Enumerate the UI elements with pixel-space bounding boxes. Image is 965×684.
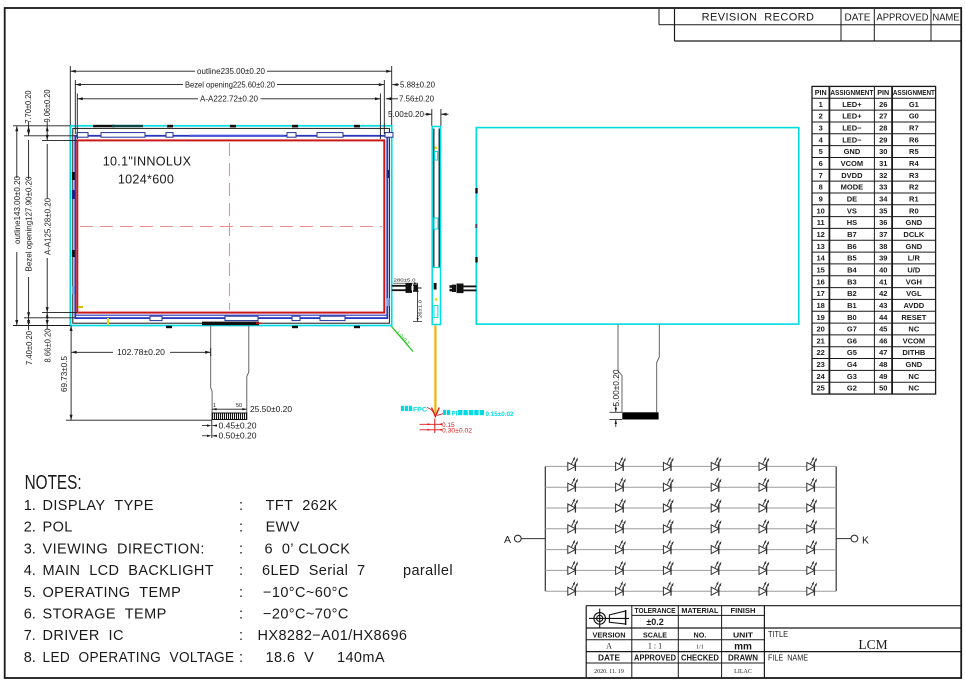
svg-text:34: 34 bbox=[879, 194, 888, 203]
svg-text::: : bbox=[239, 628, 243, 644]
svg-text:AVDD: AVDD bbox=[903, 301, 924, 310]
svg-text:17: 17 bbox=[817, 289, 825, 298]
svg-text:10: 10 bbox=[817, 206, 825, 215]
svg-text:VIEWING DIRECTION:: VIEWING DIRECTION: bbox=[43, 541, 205, 557]
svg-text:SCALE: SCALE bbox=[643, 630, 667, 639]
svg-text:DITHB: DITHB bbox=[902, 348, 925, 357]
svg-text:LCM: LCM bbox=[858, 637, 887, 652]
svg-text:31: 31 bbox=[879, 159, 887, 168]
svg-text:NC: NC bbox=[908, 325, 919, 334]
svg-text::: : bbox=[239, 607, 243, 623]
svg-text:LED−: LED− bbox=[842, 123, 862, 132]
svg-text:1: 1 bbox=[819, 100, 823, 109]
svg-text:69.73±0.5: 69.73±0.5 bbox=[60, 355, 69, 392]
svg-text:R4: R4 bbox=[909, 159, 919, 168]
svg-text:37: 37 bbox=[879, 230, 887, 239]
svg-text:APPROVED: APPROVED bbox=[634, 653, 676, 662]
svg-text:40: 40 bbox=[879, 265, 887, 274]
svg-text:R3: R3 bbox=[909, 171, 919, 180]
svg-text:DATE: DATE bbox=[845, 13, 871, 24]
svg-text:14: 14 bbox=[817, 254, 826, 263]
svg-text:A-A222.72±0.20: A-A222.72±0.20 bbox=[200, 95, 259, 104]
svg-text:28: 28 bbox=[879, 123, 887, 132]
svg-text:5.00±0.20: 5.00±0.20 bbox=[388, 110, 425, 119]
svg-text:11: 11 bbox=[817, 218, 825, 227]
svg-text:outline235.00±0.20: outline235.00±0.20 bbox=[197, 67, 266, 76]
svg-text:4.: 4. bbox=[24, 563, 36, 579]
svg-text:33: 33 bbox=[879, 183, 887, 192]
svg-text:NC: NC bbox=[908, 384, 919, 393]
svg-text:DE: DE bbox=[847, 194, 857, 203]
svg-text:25.50±0.20: 25.50±0.20 bbox=[250, 405, 293, 414]
svg-text:27: 27 bbox=[879, 112, 887, 121]
svg-text:FILE NAME: FILE NAME bbox=[768, 654, 808, 663]
svg-text:A: A bbox=[606, 642, 612, 651]
svg-text:NO.: NO. bbox=[694, 630, 707, 639]
svg-text:13: 13 bbox=[817, 242, 825, 251]
svg-text:GND: GND bbox=[906, 360, 923, 369]
svg-text:VCOM: VCOM bbox=[841, 159, 864, 168]
svg-text:23: 23 bbox=[817, 360, 825, 369]
svg-text:1 : 1: 1 : 1 bbox=[648, 642, 662, 651]
svg-text:NC: NC bbox=[908, 372, 919, 381]
svg-text:26: 26 bbox=[879, 100, 887, 109]
svg-text:MATERIAL: MATERIAL bbox=[681, 606, 719, 615]
svg-text:49: 49 bbox=[879, 372, 887, 381]
svg-text:R1: R1 bbox=[909, 194, 919, 203]
svg-text:LED+: LED+ bbox=[842, 112, 862, 121]
svg-text:ASSIGNMENT: ASSIGNMENT bbox=[893, 88, 936, 97]
svg-text:LED−: LED− bbox=[842, 135, 862, 144]
svg-text:FPC: FPC bbox=[413, 407, 427, 414]
svg-text:20: 20 bbox=[817, 325, 825, 334]
svg-text:−20°C~70°C: −20°C~70°C bbox=[263, 607, 349, 623]
svg-text:43: 43 bbox=[879, 301, 887, 310]
svg-text:1/1: 1/1 bbox=[696, 644, 704, 650]
svg-text:1.: 1. bbox=[24, 498, 36, 514]
svg-text:9: 9 bbox=[819, 194, 823, 203]
svg-text:DRIVER IC: DRIVER IC bbox=[43, 628, 124, 644]
svg-text:26±1.0: 26±1.0 bbox=[418, 300, 424, 318]
svg-text:1: 1 bbox=[213, 403, 216, 409]
svg-text:L/R: L/R bbox=[908, 254, 921, 263]
svg-text:DATE: DATE bbox=[598, 653, 620, 662]
svg-text:22: 22 bbox=[817, 348, 825, 357]
svg-text::: : bbox=[239, 498, 243, 514]
svg-text:Bezel opening225.60±0.20: Bezel opening225.60±0.20 bbox=[185, 80, 276, 89]
svg-text:0.15±0.02: 0.15±0.02 bbox=[486, 411, 514, 418]
svg-text:B3: B3 bbox=[847, 277, 857, 286]
svg-text:G1: G1 bbox=[909, 100, 919, 109]
svg-text:29: 29 bbox=[879, 135, 887, 144]
svg-text:REVISION RECORD: REVISION RECORD bbox=[702, 12, 815, 24]
svg-text:8.66±0.20: 8.66±0.20 bbox=[44, 328, 53, 363]
svg-text:DVDD: DVDD bbox=[841, 171, 863, 180]
svg-text:VCOM: VCOM bbox=[903, 336, 926, 345]
svg-text:PIN: PIN bbox=[877, 88, 889, 97]
svg-text:5.88±0.20: 5.88±0.20 bbox=[400, 80, 436, 89]
svg-text:5.: 5. bbox=[24, 585, 36, 601]
svg-text:7.: 7. bbox=[24, 628, 36, 644]
svg-text:GND: GND bbox=[844, 147, 861, 156]
svg-text:NAME: NAME bbox=[933, 13, 960, 24]
svg-text:B5: B5 bbox=[847, 254, 857, 263]
svg-text:6LED Serial 7: 6LED Serial 7 bbox=[262, 563, 366, 579]
svg-text:25: 25 bbox=[817, 384, 825, 393]
svg-text:6 0’ CLOCK: 6 0’ CLOCK bbox=[265, 541, 351, 557]
svg-text:G3: G3 bbox=[847, 372, 857, 381]
svg-text:41: 41 bbox=[879, 277, 887, 286]
svg-text:6.: 6. bbox=[24, 607, 36, 623]
svg-text:−10°C~60°C: −10°C~60°C bbox=[263, 585, 349, 601]
svg-text:16: 16 bbox=[817, 277, 825, 286]
svg-text:POL: POL bbox=[43, 520, 73, 536]
svg-text:45: 45 bbox=[879, 325, 887, 334]
svg-text:U/D: U/D bbox=[907, 265, 921, 274]
svg-text:10.1"INNOLUX: 10.1"INNOLUX bbox=[103, 155, 192, 169]
svg-text::: : bbox=[239, 520, 243, 536]
svg-text:VERSION: VERSION bbox=[593, 630, 626, 639]
svg-text:HX8282−A01/HX8696: HX8282−A01/HX8696 bbox=[258, 628, 408, 644]
svg-text:7.56±0.20: 7.56±0.20 bbox=[399, 95, 435, 104]
svg-text:A: A bbox=[504, 534, 511, 546]
svg-text:B4: B4 bbox=[847, 265, 857, 274]
svg-text:48: 48 bbox=[879, 360, 887, 369]
svg-text:MAIN LCD BACKLIGHT: MAIN LCD BACKLIGHT bbox=[43, 563, 215, 579]
svg-text:B2: B2 bbox=[847, 289, 857, 298]
svg-text:50: 50 bbox=[236, 403, 242, 409]
svg-text:39: 39 bbox=[879, 254, 887, 263]
svg-text:TFT 262K: TFT 262K bbox=[266, 498, 338, 514]
svg-text:30: 30 bbox=[879, 147, 887, 156]
svg-text:TOLERANCE: TOLERANCE bbox=[635, 606, 676, 615]
svg-text:42: 42 bbox=[879, 289, 887, 298]
svg-text:2020. 11. 19: 2020. 11. 19 bbox=[594, 669, 624, 675]
svg-text:3: 3 bbox=[819, 123, 823, 132]
svg-text:PIN: PIN bbox=[815, 88, 827, 97]
svg-text:R7: R7 bbox=[909, 123, 919, 132]
svg-text:LED+: LED+ bbox=[842, 100, 862, 109]
svg-text:15: 15 bbox=[817, 265, 825, 274]
svg-text:8: 8 bbox=[819, 183, 823, 192]
svg-text:7.40±0.20: 7.40±0.20 bbox=[25, 330, 34, 365]
svg-text:47: 47 bbox=[879, 348, 887, 357]
svg-text:9.06±0.20: 9.06±0.20 bbox=[43, 89, 52, 123]
svg-text::: : bbox=[239, 650, 243, 666]
svg-text:DRAWN: DRAWN bbox=[728, 653, 758, 662]
svg-text:HS: HS bbox=[847, 218, 857, 227]
svg-text:36: 36 bbox=[879, 218, 887, 227]
svg-text:1024*600: 1024*600 bbox=[118, 173, 174, 187]
svg-text:8.: 8. bbox=[24, 650, 36, 666]
svg-text:35: 35 bbox=[879, 206, 887, 215]
svg-text:46: 46 bbox=[879, 336, 887, 345]
svg-text:B1: B1 bbox=[847, 301, 857, 310]
svg-text:140mA: 140mA bbox=[337, 650, 385, 666]
svg-text:0.30±0.02: 0.30±0.02 bbox=[442, 428, 472, 435]
svg-text:G6: G6 bbox=[847, 336, 857, 345]
svg-text:R0: R0 bbox=[909, 206, 919, 215]
svg-text:19: 19 bbox=[817, 313, 825, 322]
svg-text:DCLK: DCLK bbox=[903, 230, 924, 239]
svg-text:B7: B7 bbox=[847, 230, 857, 239]
svg-text:R2: R2 bbox=[909, 183, 919, 192]
svg-text:GND: GND bbox=[906, 218, 923, 227]
svg-text:STORAGE TEMP: STORAGE TEMP bbox=[43, 607, 167, 623]
svg-text:TITLE: TITLE bbox=[768, 630, 788, 639]
svg-text:G0: G0 bbox=[909, 112, 919, 121]
svg-text:OPERATING TEMP: OPERATING TEMP bbox=[43, 585, 182, 601]
svg-text:G5: G5 bbox=[847, 348, 857, 357]
svg-text:DISPLAY TYPE: DISPLAY TYPE bbox=[43, 498, 154, 514]
svg-text:6: 6 bbox=[819, 159, 823, 168]
svg-text:LED OPERATING VOLTAGE: LED OPERATING VOLTAGE bbox=[43, 650, 235, 666]
svg-text:±0.2: ±0.2 bbox=[646, 617, 663, 627]
svg-text:mm: mm bbox=[734, 641, 752, 652]
svg-text:18.6 V: 18.6 V bbox=[266, 650, 315, 666]
svg-text:38: 38 bbox=[879, 242, 887, 251]
svg-text:R5: R5 bbox=[909, 147, 919, 156]
svg-text:VGH: VGH bbox=[906, 277, 922, 286]
svg-text:2: 2 bbox=[819, 112, 823, 121]
svg-text:LILAC: LILAC bbox=[734, 669, 752, 675]
svg-text:280±5.0: 280±5.0 bbox=[394, 278, 416, 284]
svg-text::: : bbox=[239, 585, 243, 601]
svg-text::: : bbox=[239, 563, 243, 579]
svg-text:FINISH: FINISH bbox=[731, 606, 756, 615]
svg-text:B0: B0 bbox=[847, 313, 857, 322]
svg-text:G4: G4 bbox=[847, 360, 858, 369]
svg-text:A-A125.28±0.20: A-A125.28±0.20 bbox=[43, 197, 52, 255]
svg-text::: : bbox=[239, 541, 243, 557]
svg-text:44: 44 bbox=[879, 313, 888, 322]
svg-text:12: 12 bbox=[817, 230, 825, 239]
svg-text:0.50±0.20: 0.50±0.20 bbox=[219, 432, 258, 441]
svg-text:0.45±0.20: 0.45±0.20 bbox=[219, 421, 258, 430]
svg-text:K: K bbox=[862, 535, 869, 547]
svg-text:UNIT: UNIT bbox=[733, 630, 754, 639]
svg-text:3.: 3. bbox=[24, 541, 36, 557]
svg-text:R6: R6 bbox=[909, 135, 919, 144]
svg-text:24: 24 bbox=[817, 372, 826, 381]
svg-text:EWV: EWV bbox=[266, 520, 300, 536]
svg-text:102.78±0.20: 102.78±0.20 bbox=[117, 348, 166, 357]
svg-text:NOTES:: NOTES: bbox=[25, 472, 82, 494]
svg-text:APPROVED: APPROVED bbox=[877, 13, 929, 24]
svg-text:PI: PI bbox=[452, 410, 458, 417]
svg-text:G7: G7 bbox=[847, 325, 857, 334]
svg-text:2.: 2. bbox=[24, 520, 36, 536]
svg-text:G2: G2 bbox=[847, 384, 857, 393]
svg-text:21: 21 bbox=[817, 336, 825, 345]
svg-text:CHECKED: CHECKED bbox=[681, 653, 719, 662]
svg-text:VS: VS bbox=[847, 206, 857, 215]
svg-text:7: 7 bbox=[819, 171, 823, 180]
svg-text:outline143.00±0.20: outline143.00±0.20 bbox=[13, 175, 22, 244]
svg-text:ASSIGNMENT: ASSIGNMENT bbox=[830, 88, 874, 97]
svg-text:7.70±0.20: 7.70±0.20 bbox=[24, 90, 33, 124]
svg-text:B6: B6 bbox=[847, 242, 857, 251]
svg-text:5: 5 bbox=[819, 147, 823, 156]
svg-text:32: 32 bbox=[879, 171, 887, 180]
svg-text:RESET: RESET bbox=[901, 313, 926, 322]
svg-text:VGL: VGL bbox=[906, 289, 922, 298]
svg-text:Bezel opening127.90±0.20: Bezel opening127.90±0.20 bbox=[25, 176, 34, 272]
svg-text:5.00±0.20: 5.00±0.20 bbox=[612, 369, 621, 407]
svg-text:parallel: parallel bbox=[403, 563, 453, 579]
svg-text:GND: GND bbox=[906, 242, 923, 251]
svg-text:50: 50 bbox=[879, 384, 887, 393]
svg-text:18: 18 bbox=[817, 301, 825, 310]
svg-text:MODE: MODE bbox=[841, 183, 864, 192]
